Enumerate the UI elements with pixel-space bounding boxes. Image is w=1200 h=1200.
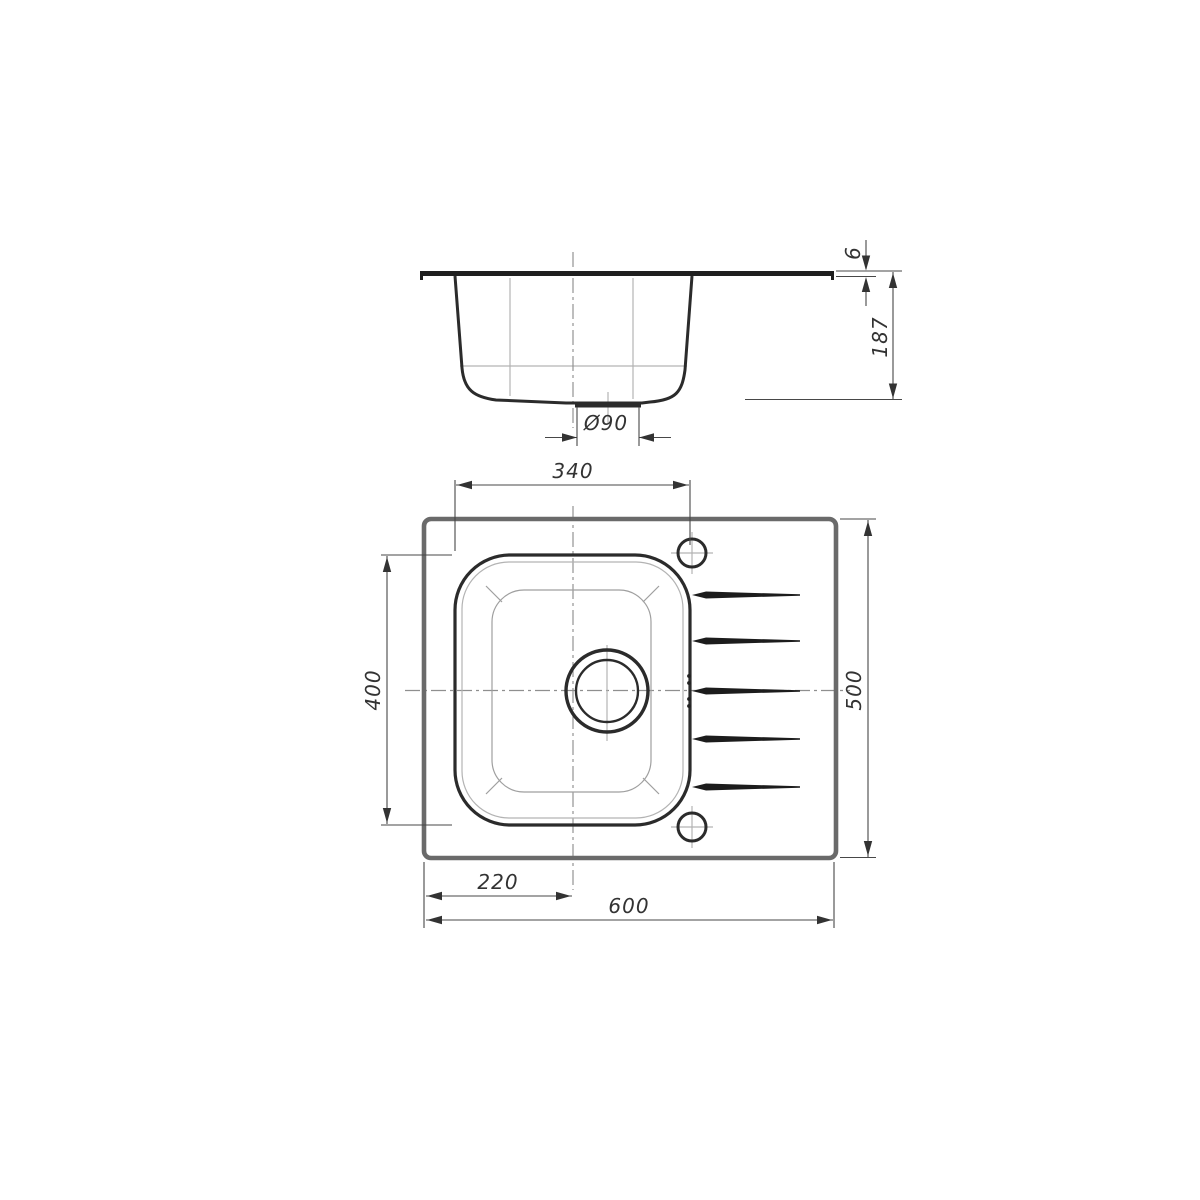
dim-label-drain-diameter: Ø90 xyxy=(583,411,628,435)
bowl-corner-line xyxy=(643,586,659,602)
bowl-corner-line xyxy=(486,778,502,794)
dim-bowl-depth: 187 xyxy=(745,272,902,400)
dim-label-bowl-length: 400 xyxy=(361,669,385,710)
dim-label-overall-width: 600 xyxy=(608,894,649,918)
drainer-groove xyxy=(692,592,800,599)
sink-technical-drawing: 6 187 Ø90 xyxy=(0,0,1200,1200)
bowl-corner-line xyxy=(486,586,502,602)
dim-rim-height: 6 xyxy=(836,240,902,306)
bowl-corner-line xyxy=(643,778,659,794)
drainer-groove xyxy=(692,638,800,645)
side-view: 6 187 Ø90 xyxy=(420,240,902,446)
tap-hole-bottom xyxy=(671,806,713,848)
drainer-groove xyxy=(692,784,800,791)
sink-outline xyxy=(424,519,836,858)
drainer-groove xyxy=(692,736,800,743)
dim-label-bowl-center-offset: 220 xyxy=(477,870,518,894)
dim-overall-depth: 500 xyxy=(840,519,876,858)
dim-label-overall-depth: 500 xyxy=(842,669,866,710)
dim-bowl-center-offset: 220 xyxy=(424,862,572,928)
tap-hole-top xyxy=(671,532,713,574)
dim-label-bowl-depth: 187 xyxy=(868,316,892,357)
dim-drain-diameter: Ø90 xyxy=(545,407,671,446)
dim-label-bowl-width: 340 xyxy=(552,459,593,483)
top-view: 340 400 500 220 xyxy=(361,459,876,928)
dim-label-rim-height: 6 xyxy=(841,246,865,260)
drawing-canvas: 6 187 Ø90 xyxy=(0,0,1200,1200)
drainer-groove xyxy=(692,688,800,695)
